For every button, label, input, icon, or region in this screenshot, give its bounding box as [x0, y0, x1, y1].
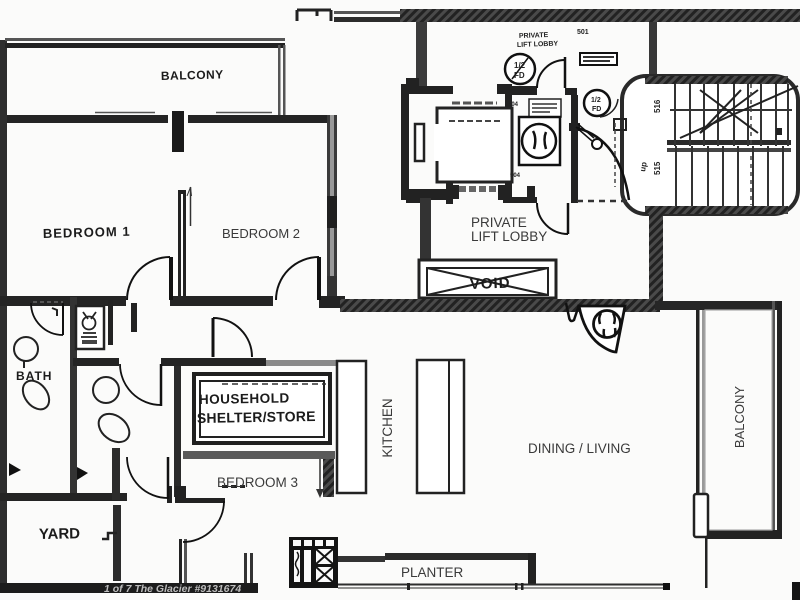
- svg-text:501: 501: [577, 29, 589, 36]
- svg-text:LIFT LOBBY: LIFT LOBBY: [471, 229, 547, 244]
- svg-text:HOUSEHOLD: HOUSEHOLD: [199, 390, 290, 407]
- svg-text:BEDROOM 1: BEDROOM 1: [43, 224, 131, 241]
- svg-text:DINING / LIVING: DINING / LIVING: [528, 441, 631, 456]
- svg-text:BEDROOM 2: BEDROOM 2: [222, 226, 300, 241]
- svg-text:LIFT LOBBY: LIFT LOBBY: [517, 41, 559, 49]
- svg-text:PLANTER: PLANTER: [401, 565, 464, 580]
- svg-text:FD: FD: [592, 106, 601, 113]
- svg-text:YARD: YARD: [39, 525, 81, 543]
- svg-text:1/2: 1/2: [514, 61, 526, 70]
- svg-text:1/2: 1/2: [591, 97, 601, 104]
- svg-text:FD: FD: [514, 71, 525, 80]
- svg-text:VOID: VOID: [470, 275, 511, 293]
- svg-text:516: 516: [653, 99, 662, 113]
- svg-text:504: 504: [510, 173, 521, 179]
- svg-text:504: 504: [508, 102, 519, 108]
- svg-text:PRIVATE: PRIVATE: [471, 215, 527, 230]
- svg-text:BEDROOM 3: BEDROOM 3: [217, 475, 298, 490]
- svg-text:up: up: [638, 161, 649, 172]
- svg-text:1 of 7 The Glacier #9131674: 1 of 7 The Glacier #9131674: [104, 583, 241, 595]
- svg-text:KITCHEN: KITCHEN: [380, 398, 395, 457]
- svg-text:BATH: BATH: [16, 369, 52, 383]
- svg-text:BALCONY: BALCONY: [732, 386, 747, 448]
- svg-text:515: 515: [653, 161, 662, 175]
- svg-text:SHELTER/STORE: SHELTER/STORE: [197, 408, 316, 426]
- svg-text:BALCONY: BALCONY: [161, 67, 224, 83]
- svg-text:PRIVATE: PRIVATE: [519, 32, 549, 40]
